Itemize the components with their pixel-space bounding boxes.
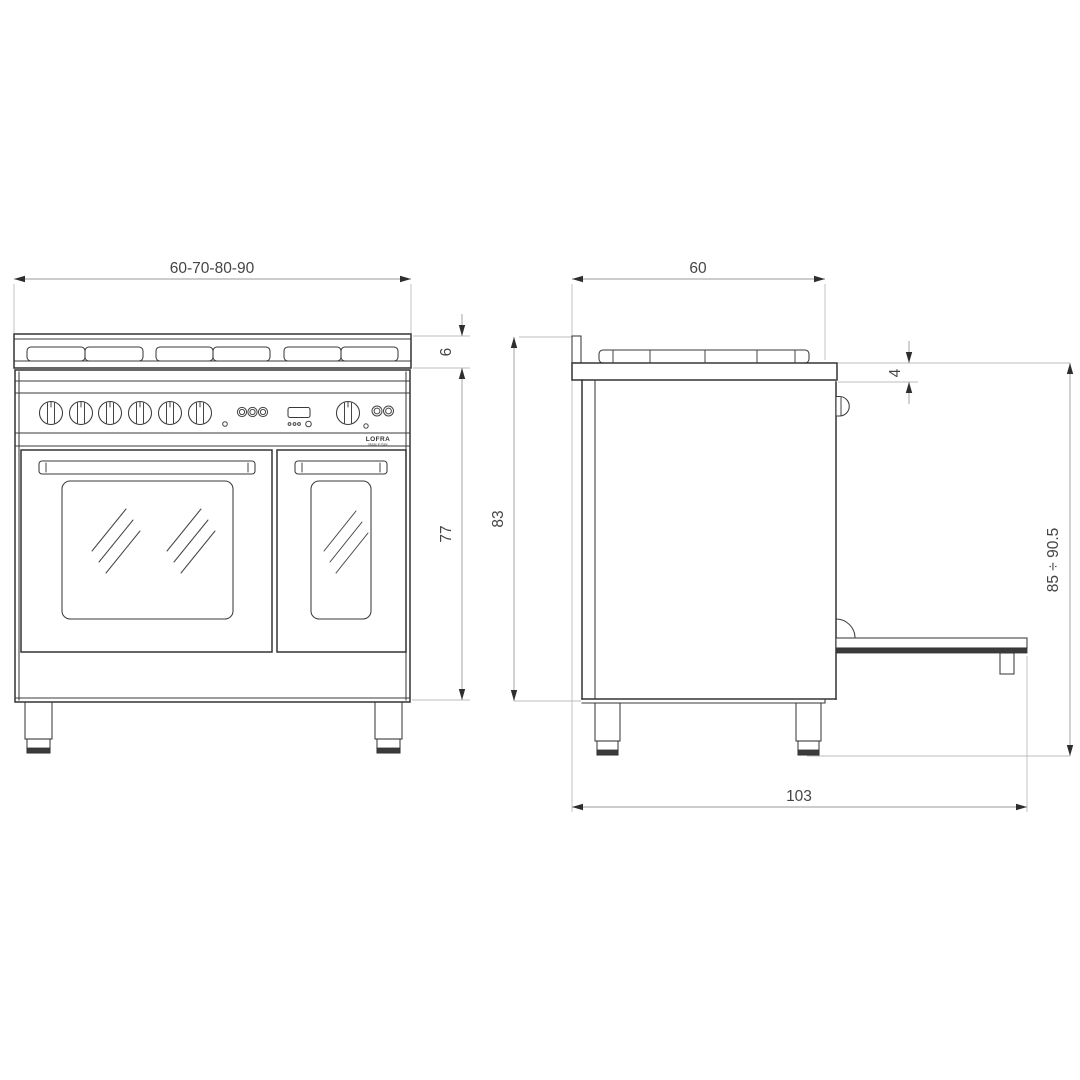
leg [375, 702, 402, 753]
arrow-up-icon [459, 368, 465, 379]
arrow-right-icon [400, 276, 411, 282]
burner-knob [70, 402, 93, 425]
front-height-dimensions: 6 77 [438, 314, 465, 700]
burner-knob [189, 402, 212, 425]
arrow-left-icon [572, 276, 583, 282]
front-body-height-label: 77 [438, 525, 455, 542]
indicator-dot [364, 424, 368, 428]
leg [25, 702, 52, 753]
glass-shine [324, 511, 368, 573]
door-support-foot [1000, 653, 1014, 674]
cooker-dimension-drawing: 60-70-80-90 6 77 [0, 0, 1080, 1080]
arrow-down-icon [459, 689, 465, 700]
arrow-right-icon [1016, 804, 1027, 810]
arrow-left-icon [14, 276, 25, 282]
glass-shine [92, 509, 215, 573]
leg [796, 703, 821, 755]
indicator-dot [223, 422, 228, 427]
arrow-down-icon [1067, 745, 1073, 756]
front-view: 60-70-80-90 6 77 [14, 260, 470, 753]
side-legs [595, 703, 821, 755]
arrow-up-icon [511, 337, 517, 348]
arrow-right-icon [814, 276, 825, 282]
open-door-shelf [836, 638, 1027, 674]
brand-subtitle: Made in Italy [368, 443, 388, 447]
burner-knob [129, 402, 152, 425]
oven-window [62, 481, 233, 619]
side-depth-label: 60 [689, 260, 707, 277]
side-body [572, 336, 1027, 755]
backsplash-upstand [572, 336, 581, 363]
arrow-left-icon [572, 804, 583, 810]
oven-window [311, 481, 371, 619]
brand-logo: LOFRA Made in Italy [366, 436, 390, 447]
worktop-slab [572, 363, 837, 380]
burner-knob [40, 402, 63, 425]
side-door-handle [836, 397, 849, 417]
open-door-depth-dimension: 103 [572, 788, 1027, 810]
arrow-down-icon [906, 352, 912, 363]
side-body-height-label: 83 [490, 510, 507, 527]
leg [595, 703, 620, 755]
open-door-depth-label: 103 [786, 788, 812, 805]
secondary-oven-door [277, 450, 406, 652]
burner-grates [27, 347, 398, 361]
arrow-up-icon [906, 382, 912, 393]
overall-height-label: 85 ÷ 90.5 [1045, 528, 1062, 593]
arrow-down-icon [511, 690, 517, 701]
side-depth-dimension: 60 [572, 260, 825, 282]
door-handle [295, 461, 387, 474]
door-swing-arc [836, 619, 855, 638]
front-hob-depth-label: 6 [438, 348, 455, 357]
oven-knob [337, 402, 360, 425]
arrow-up-icon [1067, 363, 1073, 374]
side-view: 60 4 83 85 ÷ 90.5 103 [490, 260, 1073, 812]
clock-display [288, 408, 311, 427]
timer-buttons [237, 407, 267, 416]
technical-drawing-page: 60-70-80-90 6 77 [0, 0, 1080, 1080]
side-body-height-dimension: 83 [490, 337, 517, 701]
burner-knob [159, 402, 182, 425]
worktop-offset-dimension: 4 [887, 341, 912, 404]
front-width-dimension: 60-70-80-90 [14, 260, 411, 282]
overall-height-dimension: 85 ÷ 90.5 [1045, 363, 1073, 756]
control-panel: LOFRA Made in Italy [40, 402, 394, 447]
front-width-label: 60-70-80-90 [170, 260, 255, 277]
grate-profile [599, 350, 809, 363]
worktop-offset-label: 4 [887, 368, 904, 377]
burner-knobs [40, 402, 212, 425]
arrow-down-icon [459, 325, 465, 336]
burner-knob [99, 402, 122, 425]
oven-buttons [372, 406, 394, 416]
door-handle [39, 461, 255, 474]
main-oven-door [21, 450, 272, 652]
front-legs [25, 702, 402, 753]
hob-top [14, 334, 411, 368]
front-extension-lines [14, 284, 470, 700]
